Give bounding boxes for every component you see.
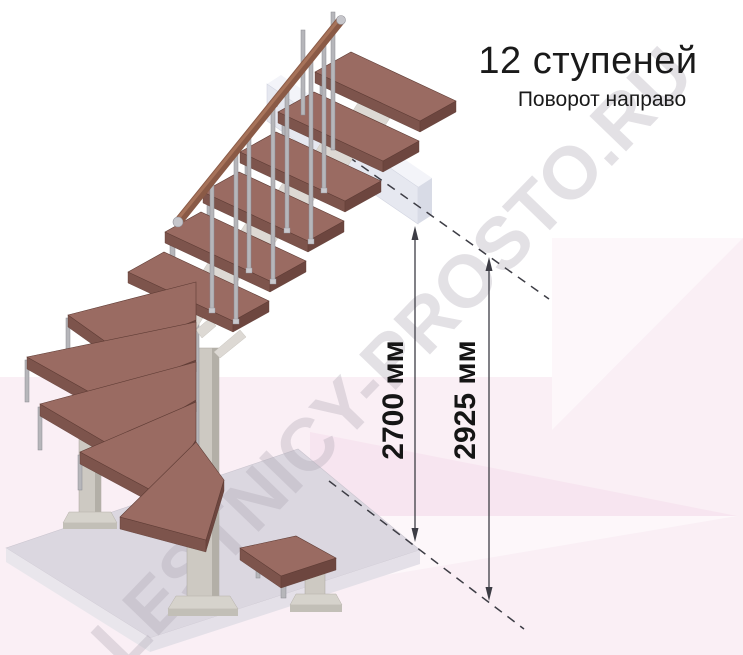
lower-level-dashed-line: [329, 481, 524, 629]
dimension-label-2925: 2925 мм: [449, 290, 483, 510]
page-title: 12 ступеней: [438, 40, 738, 83]
column-bracket: [214, 330, 246, 358]
dimension-line-2925: [486, 257, 493, 601]
winder-treads: [27, 282, 224, 552]
dimension-line-2700: [412, 226, 419, 542]
handrail-top-cap: [337, 16, 346, 25]
dimension-label-2700: 2700 мм: [377, 290, 411, 510]
staircase-diagram: LESTNICY-PROSTO.RU: [0, 0, 743, 655]
page-subtitle: Поворот направо: [452, 88, 743, 112]
handrail-end-cap: [173, 217, 183, 227]
